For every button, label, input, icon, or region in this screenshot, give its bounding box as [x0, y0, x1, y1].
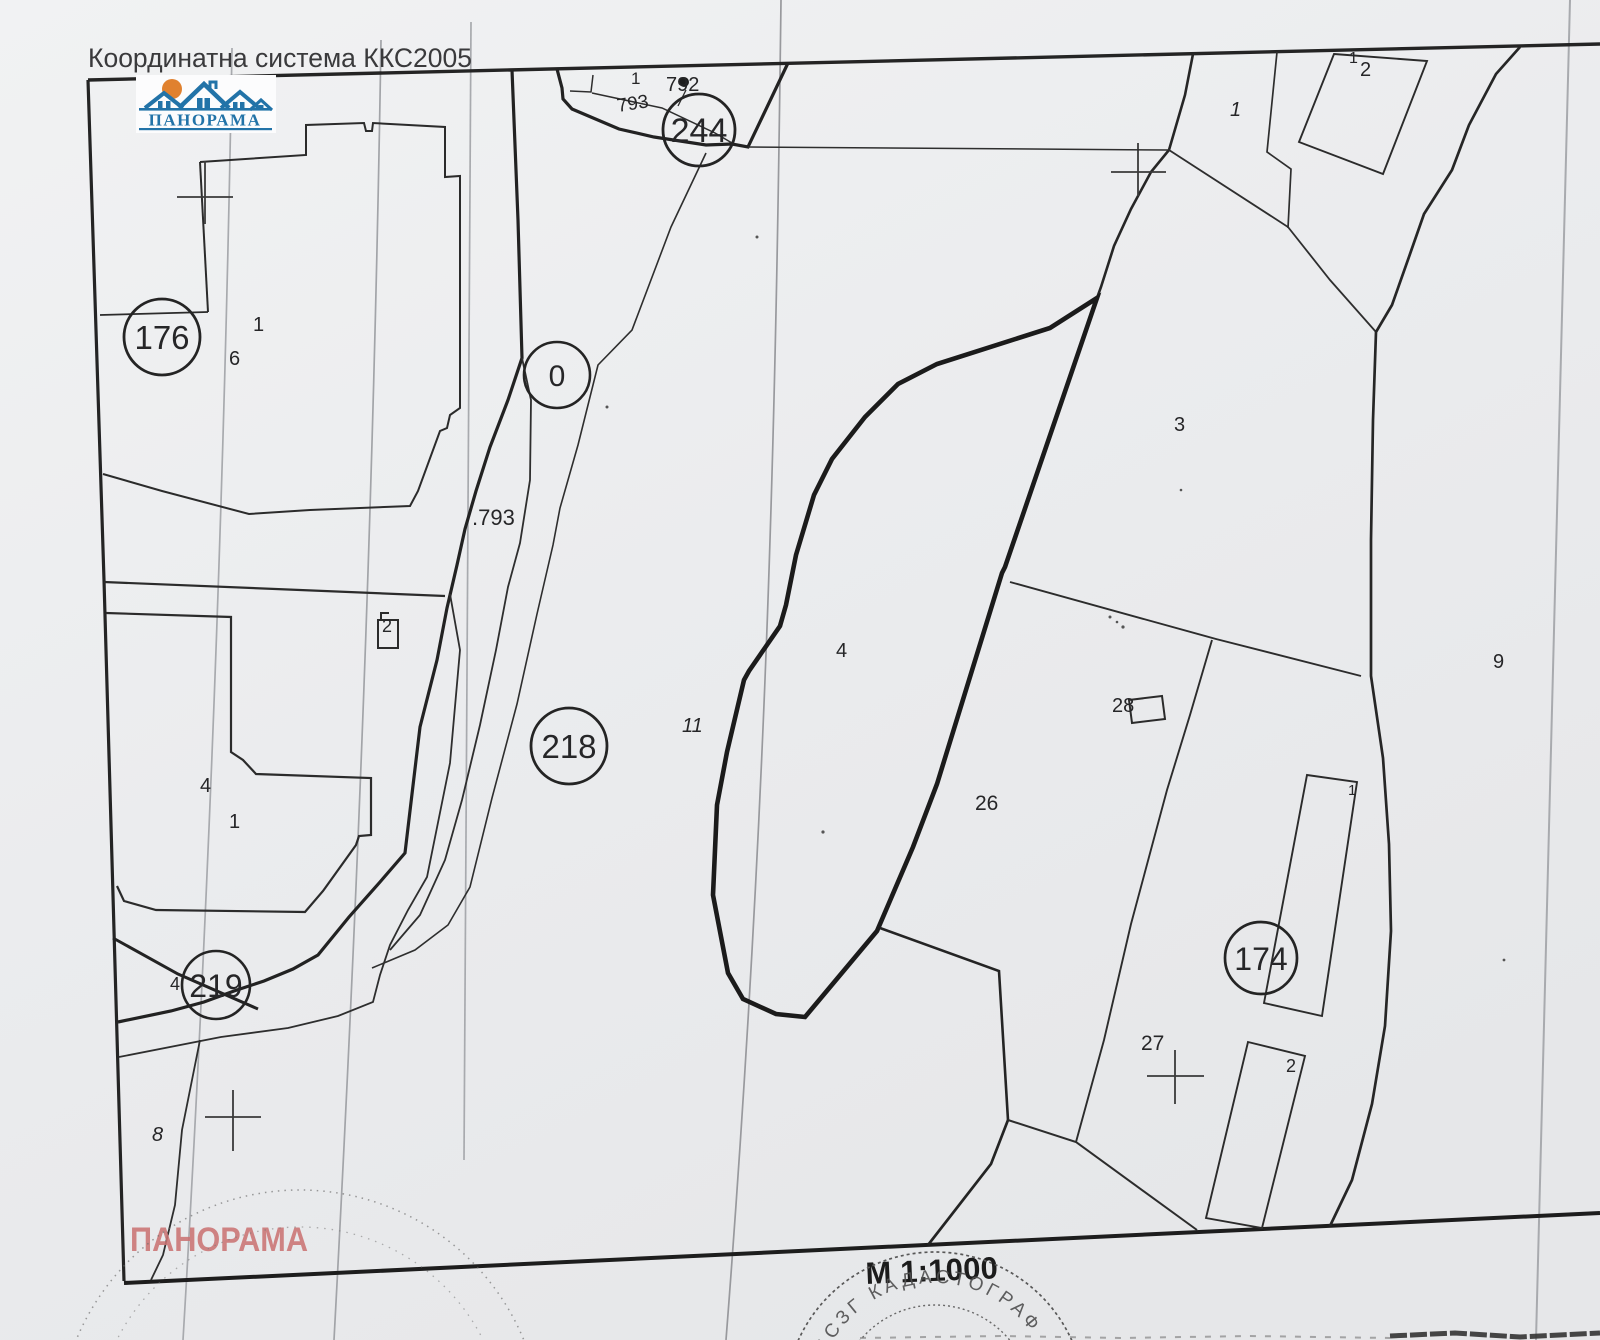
- svg-text:4: 4: [836, 640, 847, 662]
- svg-text:0: 0: [549, 360, 566, 393]
- svg-text:219: 219: [189, 968, 242, 1004]
- svg-text:1: 1: [229, 811, 240, 833]
- svg-text:2: 2: [1360, 59, 1371, 81]
- svg-text:1: 1: [1349, 50, 1358, 67]
- svg-text:27: 27: [1141, 1032, 1164, 1055]
- svg-text:.793: .793: [472, 505, 515, 530]
- svg-text:11: 11: [682, 715, 703, 737]
- svg-text:176: 176: [134, 319, 189, 356]
- svg-text:4: 4: [200, 775, 211, 797]
- svg-text:1: 1: [1348, 782, 1356, 799]
- svg-text:244: 244: [671, 112, 728, 150]
- svg-text:1: 1: [1230, 99, 1241, 121]
- svg-text:218: 218: [541, 728, 596, 765]
- svg-text:1: 1: [253, 314, 264, 336]
- svg-text:6: 6: [229, 348, 240, 370]
- svg-text:4: 4: [170, 974, 180, 994]
- svg-text:28: 28: [1112, 695, 1134, 717]
- svg-text:1: 1: [631, 69, 640, 88]
- svg-text:792: 792: [666, 74, 699, 96]
- svg-text:2: 2: [382, 616, 392, 636]
- svg-text:ПАНОРАМА: ПАНОРАМА: [130, 1221, 308, 1259]
- svg-text:2: 2: [1286, 1056, 1296, 1076]
- svg-text:Координатна система ККС2005: Координатна система ККС2005: [88, 43, 472, 73]
- svg-text:ПАНОРАМА: ПАНОРАМА: [149, 111, 262, 130]
- svg-text:26: 26: [975, 792, 998, 815]
- svg-text:174: 174: [1234, 941, 1287, 977]
- svg-text:8: 8: [152, 1124, 163, 1146]
- svg-text:3: 3: [1174, 414, 1185, 436]
- svg-text:9: 9: [1493, 651, 1504, 673]
